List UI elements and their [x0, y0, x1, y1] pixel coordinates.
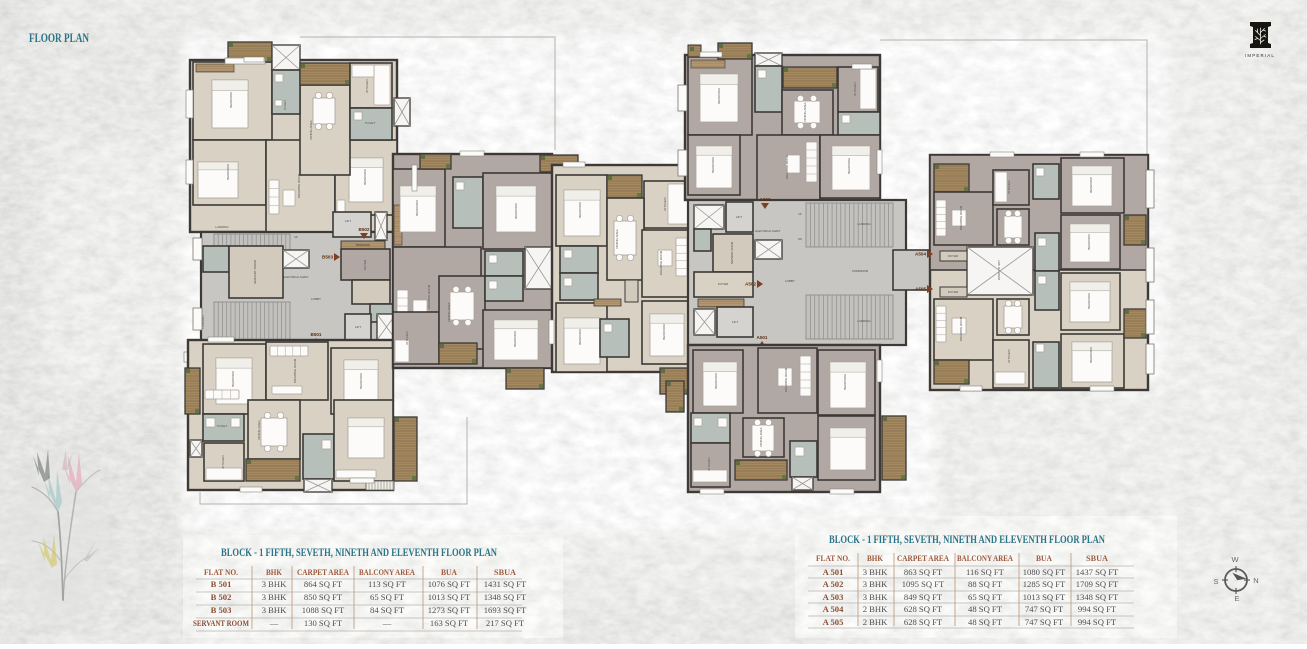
svg-text:BEDROOM: BEDROOM — [1089, 177, 1093, 193]
svg-text:88 SQ FT: 88 SQ FT — [968, 579, 1003, 589]
svg-text:1437 SQ FT: 1437 SQ FT — [1076, 567, 1119, 577]
svg-text:116 SQ FT: 116 SQ FT — [966, 567, 1005, 577]
svg-text:BEDROOM: BEDROOM — [717, 88, 721, 104]
svg-text:SERVANT ROOM: SERVANT ROOM — [193, 618, 249, 628]
svg-text:B 502: B 502 — [211, 592, 232, 602]
svg-text:W: W — [1231, 555, 1239, 564]
svg-text:E: E — [1234, 594, 1239, 603]
svg-text:1013 SQ FT: 1013 SQ FT — [1023, 592, 1066, 602]
svg-text:A501: A501 — [757, 335, 768, 340]
svg-text:1013 SQ FT: 1013 SQ FT — [428, 592, 471, 602]
svg-text:TOILET: TOILET — [217, 424, 228, 428]
svg-text:DRAWING ROOM: DRAWING ROOM — [959, 316, 963, 341]
svg-text:N: N — [1253, 576, 1258, 585]
svg-text:BHK: BHK — [266, 567, 282, 577]
svg-text:BEDROOM: BEDROOM — [578, 329, 582, 345]
svg-text:BLOCK - 1 FIFTH, SEVETH, NINE: BLOCK - 1 FIFTH, SEVETH, NINETH AND ELEV… — [829, 532, 1105, 546]
svg-text:BALCONY AREA: BALCONY AREA — [957, 553, 1014, 563]
svg-text:DRAWING ROOM: DRAWING ROOM — [659, 250, 663, 275]
svg-text:DRAWING ROOM: DRAWING ROOM — [784, 367, 788, 392]
svg-text:1709 SQ FT: 1709 SQ FT — [1076, 579, 1119, 589]
svg-text:48 SQ FT: 48 SQ FT — [968, 604, 1003, 614]
svg-text:1080 SQ FT: 1080 SQ FT — [1023, 567, 1066, 577]
svg-text:DRAWING ROOM: DRAWING ROOM — [297, 173, 301, 198]
svg-text:ELECTRICAL SHAFT: ELECTRICAL SHAFT — [755, 229, 781, 233]
svg-text:1273 SQ FT: 1273 SQ FT — [428, 605, 471, 615]
svg-text:1431 SQ FT: 1431 SQ FT — [484, 579, 527, 589]
svg-text:KITCHEN: KITCHEN — [405, 331, 409, 344]
svg-text:A 503: A 503 — [823, 592, 844, 602]
svg-text:BEDROOM: BEDROOM — [513, 331, 517, 347]
svg-text:3 BHK: 3 BHK — [262, 592, 287, 602]
svg-text:TOILET: TOILET — [365, 121, 376, 125]
svg-text:B502: B502 — [359, 227, 370, 232]
svg-text:FOYER: FOYER — [363, 259, 367, 270]
svg-text:130 SQ FT: 130 SQ FT — [304, 618, 343, 628]
svg-text:DINING AREA: DINING AREA — [615, 229, 619, 248]
svg-text:1076 SQ FT: 1076 SQ FT — [428, 579, 471, 589]
svg-text:BUA: BUA — [441, 567, 458, 577]
svg-text:1095 SQ FT: 1095 SQ FT — [902, 579, 945, 589]
svg-text:BALCONY AREA: BALCONY AREA — [359, 567, 416, 577]
svg-text:DRAWING ROOM: DRAWING ROOM — [959, 205, 963, 230]
svg-text:KITCHEN: KITCHEN — [221, 455, 225, 468]
svg-text:BEDROOM: BEDROOM — [711, 157, 715, 173]
svg-text:DINING AREA: DINING AREA — [257, 420, 261, 439]
svg-text:BEDROOM: BEDROOM — [1087, 234, 1091, 250]
svg-text:UP: UP — [294, 235, 298, 239]
svg-text:KITCHEN: KITCHEN — [853, 82, 857, 95]
svg-text:84 SQ FT: 84 SQ FT — [370, 605, 405, 615]
svg-text:—: — — [269, 618, 279, 628]
svg-text:LANDING: LANDING — [857, 319, 871, 323]
svg-text:1348 SQ FT: 1348 SQ FT — [1076, 592, 1119, 602]
svg-text:1348 SQ FT: 1348 SQ FT — [484, 592, 527, 602]
svg-text:BEDROOM: BEDROOM — [363, 169, 367, 185]
svg-text:864 SQ FT: 864 SQ FT — [304, 579, 343, 589]
svg-text:FOYER: FOYER — [948, 290, 959, 294]
svg-text:CARPET AREA: CARPET AREA — [897, 553, 950, 563]
svg-text:SERVANT ROOM: SERVANT ROOM — [730, 241, 734, 264]
svg-text:747 SQ FT: 747 SQ FT — [1025, 617, 1064, 627]
svg-text:BEDROOM: BEDROOM — [714, 373, 718, 389]
svg-text:BEDROOM: BEDROOM — [226, 164, 230, 180]
svg-text:DINING AREA: DINING AREA — [803, 102, 807, 121]
svg-text:A 501: A 501 — [823, 567, 844, 577]
svg-text:SBUA: SBUA — [1086, 553, 1109, 563]
svg-text:2 BHK: 2 BHK — [863, 604, 888, 614]
svg-text:BEDROOM: BEDROOM — [231, 371, 235, 387]
svg-text:DRAWING ROOM: DRAWING ROOM — [293, 358, 297, 383]
svg-text:—: — — [382, 618, 392, 628]
svg-text:3 BHK: 3 BHK — [863, 592, 888, 602]
svg-text:863 SQ FT: 863 SQ FT — [904, 567, 943, 577]
svg-text:TOILET: TOILET — [283, 100, 287, 111]
svg-text:UP: UP — [798, 212, 802, 216]
svg-text:BEDROOM: BEDROOM — [415, 200, 419, 216]
svg-text:163 SQ FT: 163 SQ FT — [430, 618, 469, 628]
svg-text:FLAT NO.: FLAT NO. — [816, 553, 850, 563]
svg-text:747 SQ FT: 747 SQ FT — [1025, 604, 1064, 614]
svg-text:1693 SQ FT: 1693 SQ FT — [484, 605, 527, 615]
svg-text:65 SQ FT: 65 SQ FT — [968, 592, 1003, 602]
svg-text:S: S — [1213, 577, 1218, 586]
svg-text:A 502: A 502 — [823, 579, 844, 589]
svg-text:DN: DN — [798, 237, 802, 241]
svg-text:LOBBY: LOBBY — [785, 279, 795, 283]
svg-text:LIFT: LIFT — [736, 215, 742, 219]
svg-text:3 BHK: 3 BHK — [863, 567, 888, 577]
svg-text:B501: B501 — [311, 332, 322, 337]
svg-text:LANDING: LANDING — [857, 222, 871, 226]
svg-text:LIFT: LIFT — [732, 320, 738, 324]
svg-text:DINING AREA: DINING AREA — [759, 427, 763, 446]
svg-text:BUA: BUA — [1036, 553, 1053, 563]
svg-text:BLOCK - 1 FIFTH, SEVETH, NINE: BLOCK - 1 FIFTH, SEVETH, NINETH AND ELEV… — [221, 545, 497, 559]
svg-text:1285 SQ FT: 1285 SQ FT — [1023, 579, 1066, 589]
svg-text:FLAT NO.: FLAT NO. — [204, 567, 238, 577]
svg-text:IMPERIAL: IMPERIAL — [1245, 53, 1275, 58]
svg-text:DRAWING ROOM: DRAWING ROOM — [427, 284, 431, 309]
svg-text:LIFT: LIFT — [345, 219, 351, 223]
svg-text:994 SQ FT: 994 SQ FT — [1078, 617, 1117, 627]
svg-text:SHOE RACK: SHOE RACK — [356, 244, 370, 247]
svg-text:BEDROOM: BEDROOM — [229, 92, 233, 108]
svg-text:3 BHK: 3 BHK — [262, 579, 287, 589]
svg-text:FOYER: FOYER — [718, 282, 729, 286]
svg-text:FOYER: FOYER — [948, 254, 959, 258]
svg-text:SBUA: SBUA — [494, 567, 517, 577]
svg-text:2 BHK: 2 BHK — [863, 617, 888, 627]
svg-text:113 SQ FT: 113 SQ FT — [368, 579, 407, 589]
svg-text:ELECTRICAL SHAFT: ELECTRICAL SHAFT — [283, 275, 309, 279]
svg-text:KITCHEN: KITCHEN — [663, 197, 667, 210]
svg-text:994 SQ FT: 994 SQ FT — [1078, 604, 1117, 614]
svg-text:A503: A503 — [760, 197, 771, 202]
svg-text:B 501: B 501 — [211, 579, 232, 589]
svg-text:B 503: B 503 — [211, 605, 232, 615]
svg-text:217 SQ FT: 217 SQ FT — [486, 618, 525, 628]
svg-text:B503: B503 — [322, 255, 333, 260]
svg-text:BEDROOM: BEDROOM — [578, 202, 582, 218]
svg-text:BEDROOM: BEDROOM — [662, 324, 666, 340]
svg-text:BEDROOM: BEDROOM — [1087, 293, 1091, 309]
svg-text:3 BHK: 3 BHK — [262, 605, 287, 615]
svg-text:CORRIDOR: CORRIDOR — [852, 269, 869, 273]
svg-text:3 BHK: 3 BHK — [863, 579, 888, 589]
svg-text:A 504: A 504 — [823, 604, 844, 614]
svg-text:849 SQ FT: 849 SQ FT — [904, 592, 943, 602]
svg-text:KITCHEN: KITCHEN — [1007, 349, 1011, 362]
svg-text:BHK: BHK — [867, 553, 883, 563]
svg-text:A502: A502 — [745, 282, 756, 287]
svg-text:BEDROOM: BEDROOM — [514, 203, 518, 219]
svg-text:DRAWING ROOM: DRAWING ROOM — [785, 154, 789, 179]
svg-text:KITCHEN: KITCHEN — [707, 457, 711, 470]
svg-text:628 SQ FT: 628 SQ FT — [904, 617, 943, 627]
svg-text:KITCHEN: KITCHEN — [1007, 180, 1011, 193]
svg-text:48 SQ FT: 48 SQ FT — [968, 617, 1003, 627]
svg-text:FLOOR PLAN: FLOOR PLAN — [29, 30, 89, 45]
svg-text:CARPET AREA: CARPET AREA — [297, 567, 350, 577]
svg-text:A 505: A 505 — [823, 617, 844, 627]
svg-text:LANDING: LANDING — [215, 225, 229, 229]
svg-text:BEDROOM: BEDROOM — [847, 158, 851, 174]
svg-text:KITCHEN: KITCHEN — [365, 79, 369, 92]
svg-text:850 SQ FT: 850 SQ FT — [304, 592, 343, 602]
svg-text:BEDROOM: BEDROOM — [359, 373, 363, 389]
svg-text:DINING AREA: DINING AREA — [309, 120, 313, 139]
svg-text:A505: A505 — [915, 287, 926, 292]
svg-text:OPEN TO SKY: OPEN TO SKY — [997, 260, 1001, 280]
svg-text:A504: A504 — [915, 252, 926, 257]
svg-text:LOBBY: LOBBY — [311, 297, 321, 301]
svg-text:65 SQ FT: 65 SQ FT — [370, 592, 405, 602]
svg-text:1088 SQ FT: 1088 SQ FT — [302, 605, 345, 615]
svg-text:LIFT: LIFT — [355, 325, 361, 329]
svg-text:628 SQ FT: 628 SQ FT — [904, 604, 943, 614]
svg-text:DINING AREA: DINING AREA — [447, 302, 451, 321]
svg-text:BEDROOM: BEDROOM — [843, 374, 847, 390]
svg-text:BEDROOM: BEDROOM — [1089, 347, 1093, 363]
svg-text:SERVANT ROOM: SERVANT ROOM — [253, 260, 257, 285]
